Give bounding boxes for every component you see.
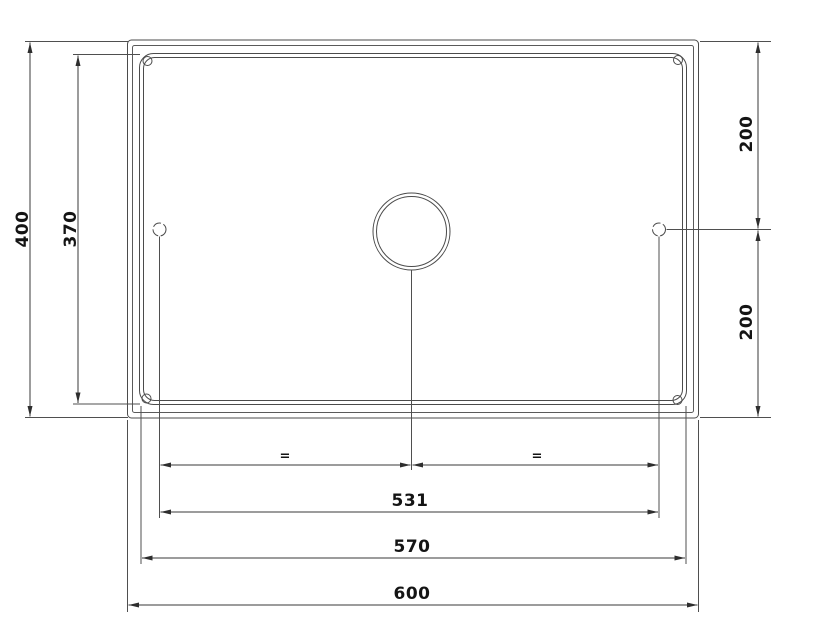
bowl-corner-radius-circles [142, 56, 683, 405]
sink-outer-rim [128, 40, 699, 418]
dim-center-to-bottom-label: 200 [737, 304, 757, 341]
dim-overall-depth-label: 400 [13, 211, 33, 248]
dim-overall-width-label: 600 [394, 584, 431, 604]
dim-center-to-top-label: 200 [737, 116, 757, 153]
tap-hole-left [153, 223, 166, 236]
sink-top-view-drawing: 400 370 200 200 = = 531 570 600 [0, 0, 840, 626]
technical-drawing-sheet: 400 370 200 200 = = 531 570 600 [0, 0, 840, 626]
drain-hole [373, 193, 450, 270]
sink-bowl-outline [140, 54, 687, 405]
dim-bowl-depth-label: 370 [61, 211, 81, 248]
corner-circle-top-left [143, 57, 152, 66]
corner-circle-bottom-left [142, 394, 151, 403]
tap-hole-right [653, 223, 666, 236]
dim-equal-left-label: = [280, 449, 291, 464]
extension-lines [25, 42, 771, 613]
dim-bowl-width-label: 570 [394, 537, 431, 557]
dim-hole-spacing-label: 531 [392, 491, 429, 511]
dimension-labels: 400 370 200 200 = = 531 570 600 [13, 116, 757, 605]
dim-equal-right-label: = [532, 449, 543, 464]
